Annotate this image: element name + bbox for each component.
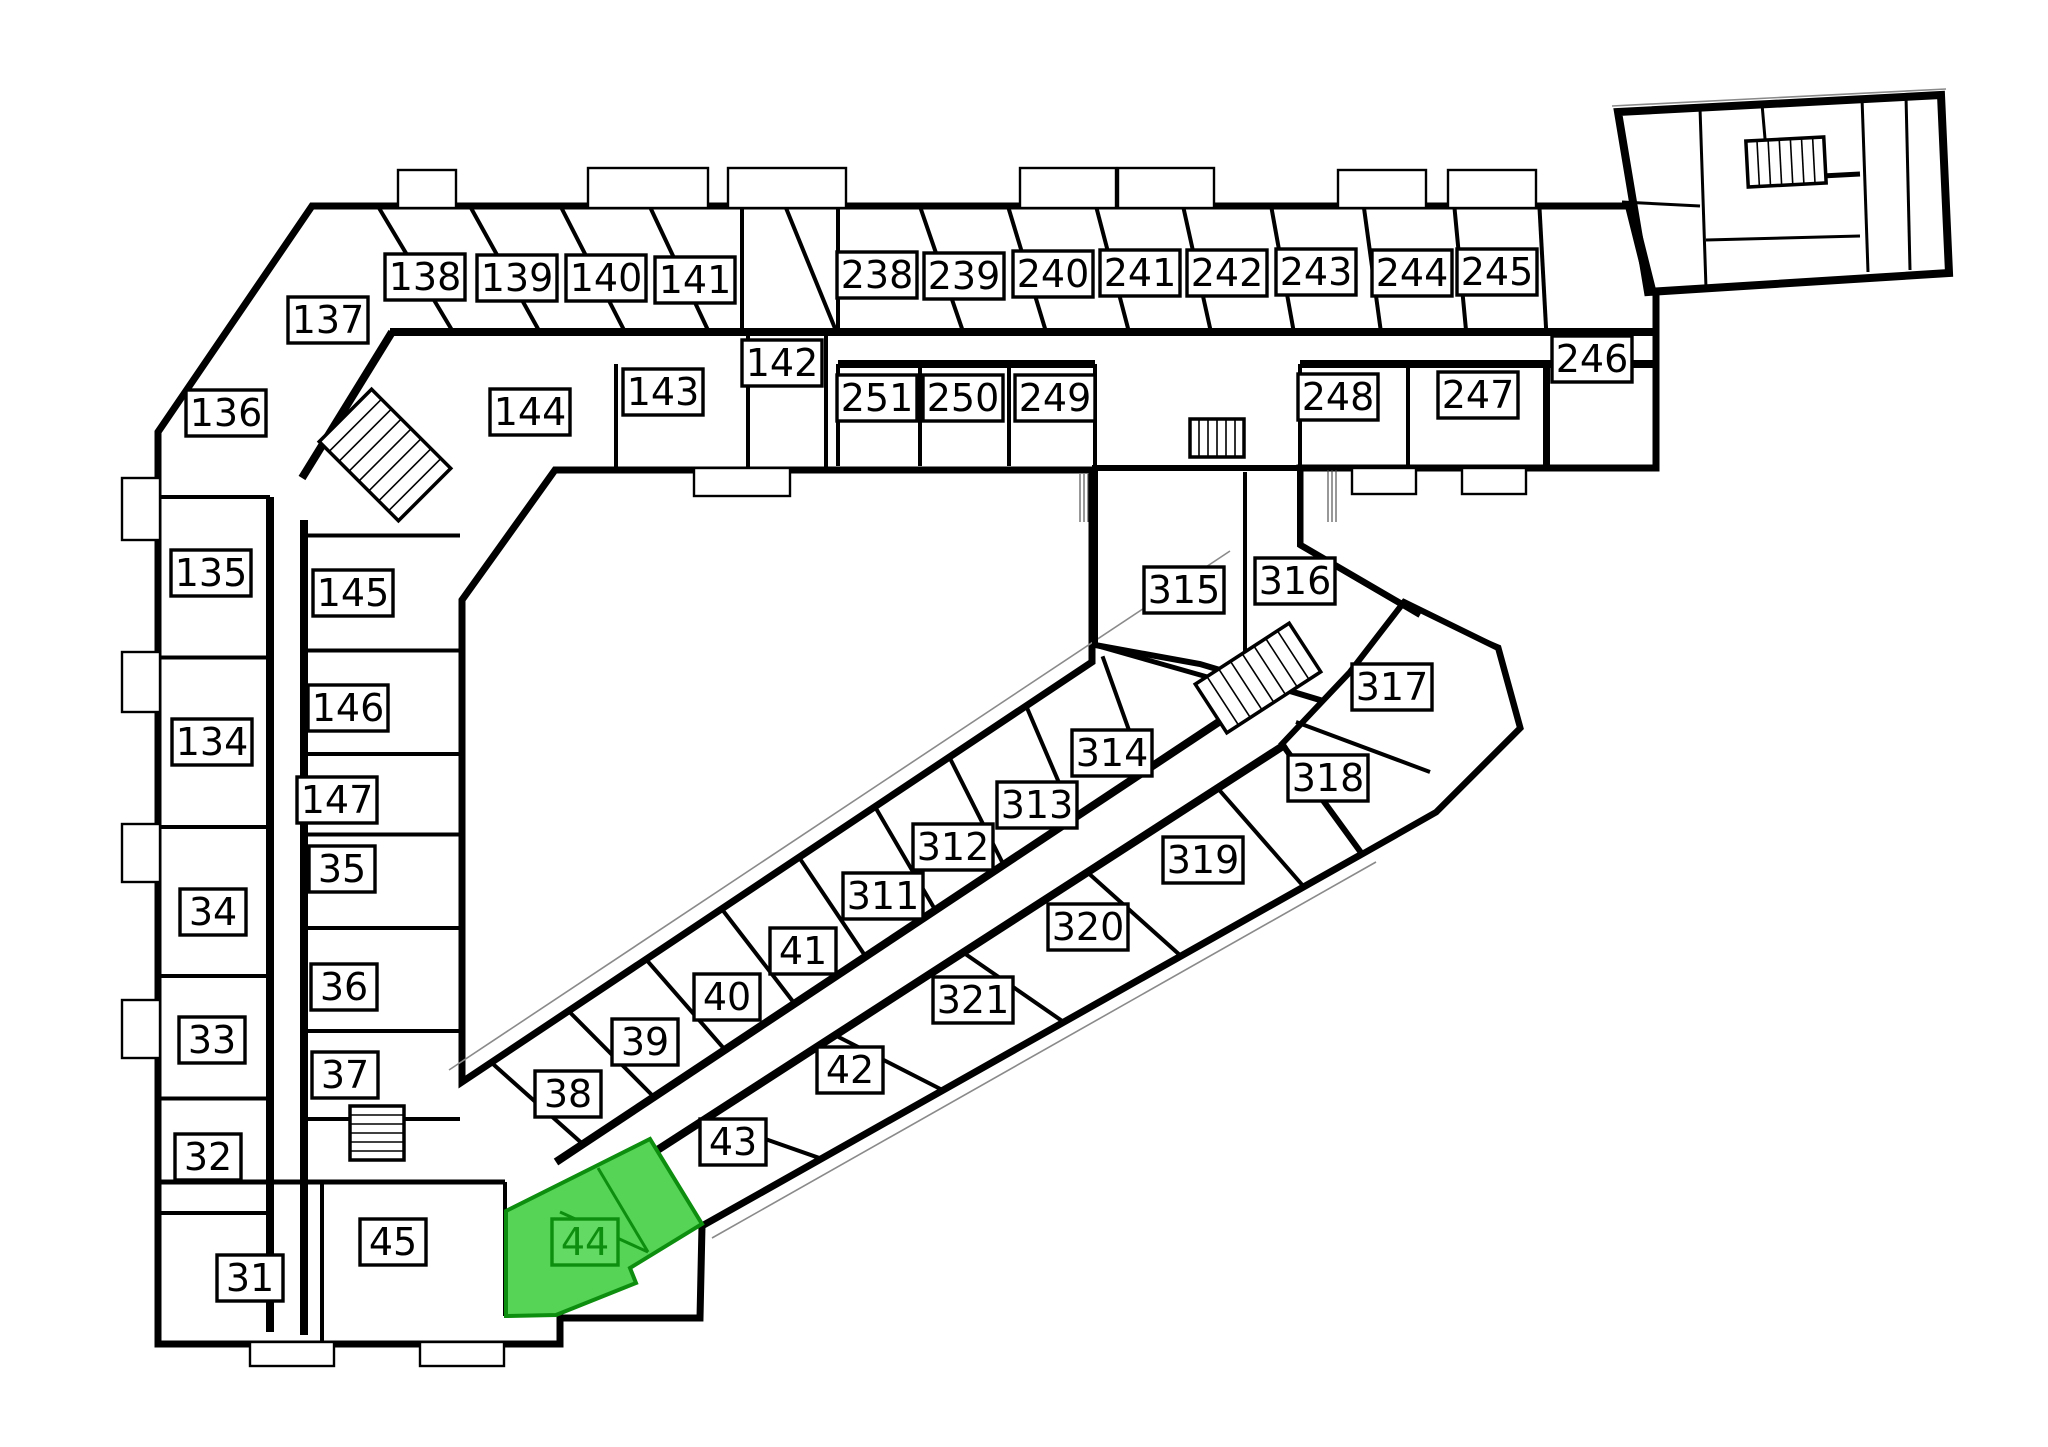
unit-label-318[interactable]: 318	[1288, 755, 1368, 801]
floor-plan-svg: 1381391401411371361421431441451351461341…	[0, 0, 2048, 1447]
unit-number: 147	[301, 778, 374, 822]
unit-number: 318	[1292, 756, 1365, 800]
unit-number: 319	[1167, 838, 1240, 882]
unit-number: 312	[917, 825, 990, 869]
unit-label-32[interactable]: 32	[175, 1134, 241, 1180]
unit-number: 44	[561, 1220, 609, 1264]
unit-number: 142	[746, 341, 819, 385]
window-bay	[122, 478, 160, 540]
unit-number: 244	[1376, 251, 1449, 295]
window-bay	[1448, 170, 1536, 208]
window-bay	[694, 468, 790, 496]
unit-number: 317	[1356, 665, 1429, 709]
unit-label-319[interactable]: 319	[1163, 837, 1243, 883]
window-bay	[122, 1000, 160, 1058]
unit-label-137[interactable]: 137	[288, 297, 368, 343]
unit-number: 43	[709, 1120, 757, 1164]
unit-label-36[interactable]: 36	[311, 964, 377, 1010]
window-bay	[1462, 468, 1526, 494]
unit-number: 311	[847, 874, 920, 918]
window-bay	[122, 652, 160, 712]
unit-label-143[interactable]: 143	[623, 369, 703, 415]
unit-label-242[interactable]: 242	[1187, 250, 1267, 296]
unit-number: 251	[841, 376, 914, 420]
unit-label-35[interactable]: 35	[309, 846, 375, 892]
unit-label-146[interactable]: 146	[308, 685, 388, 731]
unit-label-42[interactable]: 42	[817, 1047, 883, 1093]
unit-label-45[interactable]: 45	[360, 1219, 426, 1265]
unit-label-249[interactable]: 249	[1015, 375, 1095, 421]
unit-number: 316	[1259, 559, 1332, 603]
window-bay	[588, 168, 708, 208]
unit-label-313[interactable]: 313	[997, 782, 1077, 828]
unit-label-243[interactable]: 243	[1276, 249, 1356, 295]
unit-number: 41	[779, 929, 827, 973]
unit-label-139[interactable]: 139	[477, 255, 557, 301]
unit-label-40[interactable]: 40	[694, 974, 760, 1020]
unit-label-34[interactable]: 34	[180, 889, 246, 935]
window-bay	[1020, 168, 1116, 208]
unit-number: 248	[1302, 375, 1375, 419]
unit-label-136[interactable]: 136	[186, 390, 266, 436]
unit-label-238[interactable]: 238	[837, 252, 917, 298]
unit-number: 32	[184, 1135, 232, 1179]
unit-number: 247	[1442, 373, 1515, 417]
unit-label-134[interactable]: 134	[172, 719, 252, 765]
unit-label-138[interactable]: 138	[385, 254, 465, 300]
window-bay	[1338, 170, 1426, 208]
unit-number: 31	[226, 1256, 274, 1300]
unit-label-241[interactable]: 241	[1100, 250, 1180, 296]
unit-number: 249	[1019, 376, 1092, 420]
unit-label-140[interactable]: 140	[566, 255, 646, 301]
stair-core	[350, 1106, 404, 1160]
unit-label-39[interactable]: 39	[612, 1019, 678, 1065]
unit-number: 34	[189, 890, 237, 934]
unit-number: 246	[1556, 337, 1629, 381]
unit-number: 37	[321, 1053, 369, 1097]
unit-label-312[interactable]: 312	[913, 824, 993, 870]
unit-label-315[interactable]: 315	[1144, 567, 1224, 613]
unit-number: 36	[320, 965, 368, 1009]
unit-number: 320	[1052, 905, 1125, 949]
stair-core	[1746, 137, 1826, 187]
unit-number: 38	[544, 1072, 592, 1116]
unit-number: 138	[389, 255, 462, 299]
unit-number: 239	[928, 254, 1001, 298]
unit-label-145[interactable]: 145	[313, 570, 393, 616]
unit-number: 315	[1148, 568, 1221, 612]
unit-number: 45	[369, 1220, 417, 1264]
window-bay	[728, 168, 846, 208]
unit-number: 250	[927, 376, 1000, 420]
unit-label-311[interactable]: 311	[843, 873, 923, 919]
unit-number: 145	[317, 571, 390, 615]
unit-label-44[interactable]: 44	[552, 1219, 618, 1265]
unit-label-38[interactable]: 38	[535, 1071, 601, 1117]
unit-label-248[interactable]: 248	[1298, 374, 1378, 420]
detached-building	[1618, 95, 1949, 292]
unit-number: 140	[570, 256, 643, 300]
unit-label-245[interactable]: 245	[1457, 249, 1537, 295]
unit-number: 35	[318, 847, 366, 891]
unit-number: 146	[312, 686, 385, 730]
unit-number: 143	[627, 370, 700, 414]
unit-label-135[interactable]: 135	[171, 550, 251, 596]
floor-plan-page: 1381391401411371361421431441451351461341…	[0, 0, 2048, 1447]
unit-label-321[interactable]: 321	[933, 977, 1013, 1023]
unit-number: 39	[621, 1020, 669, 1064]
unit-label-320[interactable]: 320	[1048, 904, 1128, 950]
unit-label-43[interactable]: 43	[700, 1119, 766, 1165]
unit-label-37[interactable]: 37	[312, 1052, 378, 1098]
unit-label-316[interactable]: 316	[1255, 558, 1335, 604]
unit-label-41[interactable]: 41	[770, 928, 836, 974]
stair-core	[1190, 419, 1244, 457]
unit-number: 243	[1280, 250, 1353, 294]
window-bay	[122, 824, 160, 882]
unit-label-251[interactable]: 251	[837, 375, 917, 421]
unit-number: 242	[1191, 251, 1264, 295]
unit-number: 137	[292, 298, 365, 342]
window-bay	[250, 1342, 334, 1366]
unit-label-246[interactable]: 246	[1552, 336, 1632, 382]
unit-number: 313	[1001, 783, 1074, 827]
unit-number: 314	[1076, 731, 1149, 775]
unit-number: 240	[1017, 252, 1090, 296]
window-bay	[1118, 168, 1214, 208]
unit-number: 144	[494, 390, 567, 434]
unit-label-247[interactable]: 247	[1438, 372, 1518, 418]
unit-label-33[interactable]: 33	[179, 1017, 245, 1063]
window-bay	[420, 1342, 504, 1366]
unit-number: 136	[190, 391, 263, 435]
unit-number: 321	[937, 978, 1010, 1022]
unit-number: 134	[176, 720, 249, 764]
unit-number: 238	[841, 253, 914, 297]
unit-label-142[interactable]: 142	[742, 340, 822, 386]
unit-number: 42	[826, 1048, 874, 1092]
unit-label-317[interactable]: 317	[1352, 664, 1432, 710]
unit-number: 141	[659, 258, 732, 302]
unit-number: 33	[188, 1018, 236, 1062]
unit-label-244[interactable]: 244	[1372, 250, 1452, 296]
unit-number: 245	[1461, 250, 1534, 294]
unit-label-239[interactable]: 239	[924, 253, 1004, 299]
unit-label-144[interactable]: 144	[490, 389, 570, 435]
unit-label-147[interactable]: 147	[297, 777, 377, 823]
window-bay	[398, 170, 456, 208]
window-bay	[1352, 468, 1416, 494]
unit-number: 241	[1104, 251, 1177, 295]
unit-number: 40	[703, 975, 751, 1019]
unit-label-250[interactable]: 250	[923, 375, 1003, 421]
unit-number: 139	[481, 256, 554, 300]
unit-number: 135	[175, 551, 248, 595]
unit-label-240[interactable]: 240	[1013, 251, 1093, 297]
unit-label-314[interactable]: 314	[1072, 730, 1152, 776]
unit-label-141[interactable]: 141	[655, 257, 735, 303]
unit-label-31[interactable]: 31	[217, 1255, 283, 1301]
